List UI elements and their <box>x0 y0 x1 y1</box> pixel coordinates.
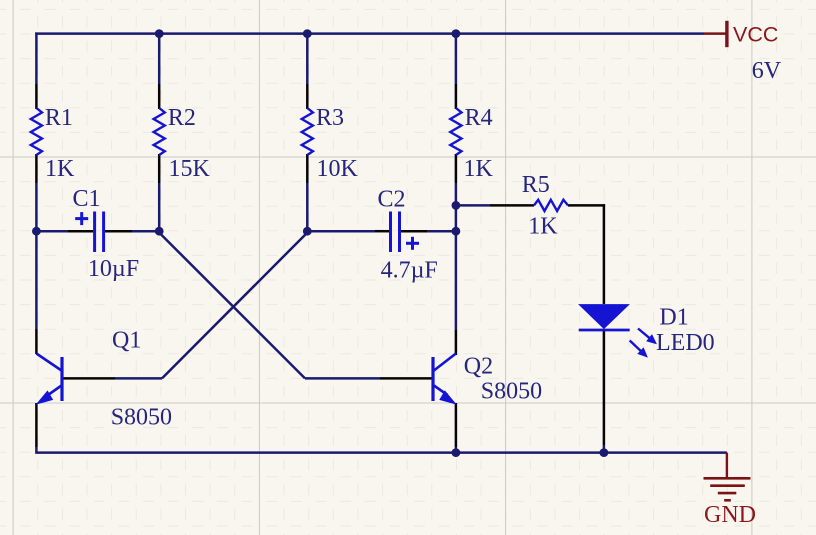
svg-text:1K: 1K <box>528 214 558 240</box>
svg-text:Q2: Q2 <box>464 354 493 380</box>
svg-text:6V: 6V <box>752 58 782 84</box>
svg-text:10K: 10K <box>317 156 359 182</box>
svg-text:LED0: LED0 <box>656 330 715 356</box>
svg-text:R3: R3 <box>316 105 344 131</box>
svg-text:1K: 1K <box>45 156 75 182</box>
svg-text:S8050: S8050 <box>481 379 542 405</box>
svg-text:1K: 1K <box>464 156 494 182</box>
svg-text:C1: C1 <box>73 186 101 212</box>
svg-text:C2: C2 <box>378 186 406 212</box>
svg-text:Q1: Q1 <box>112 328 141 354</box>
svg-text:R5: R5 <box>522 172 550 198</box>
svg-text:S8050: S8050 <box>111 404 172 430</box>
svg-text:15K: 15K <box>169 156 211 182</box>
svg-text:R4: R4 <box>465 105 493 131</box>
svg-text:R1: R1 <box>45 105 73 131</box>
svg-text:10µF: 10µF <box>88 256 139 282</box>
svg-text:D1: D1 <box>659 305 688 331</box>
svg-text:R2: R2 <box>168 105 196 131</box>
svg-text:GND: GND <box>704 502 756 528</box>
svg-text:VCC: VCC <box>733 23 778 47</box>
svg-text:4.7µF: 4.7µF <box>381 257 438 283</box>
